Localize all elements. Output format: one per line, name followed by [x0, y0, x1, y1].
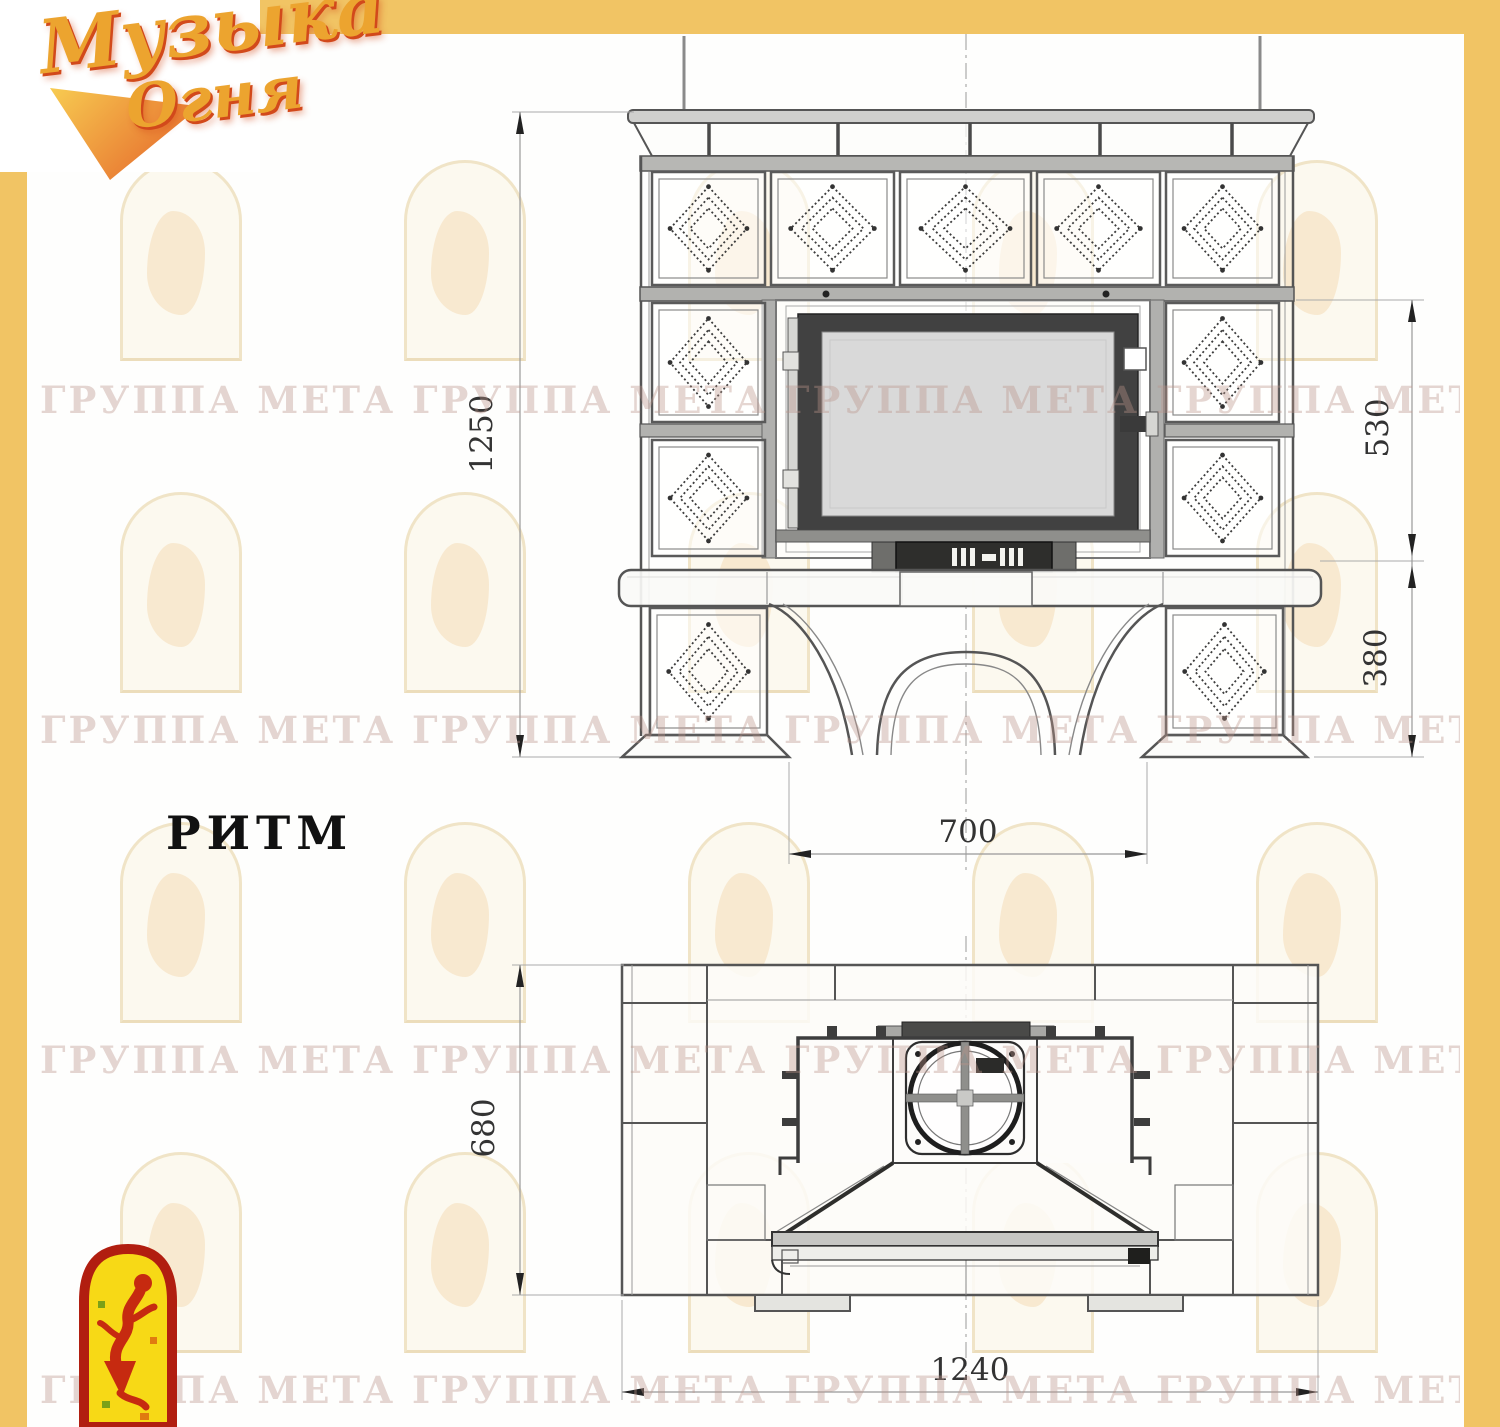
diamond-tile — [652, 303, 765, 422]
diamond-tile — [1166, 440, 1279, 556]
trim-band-right — [1165, 424, 1294, 437]
diamond-tile — [771, 172, 894, 285]
vent-grille — [872, 542, 1076, 572]
damper-handle — [976, 1058, 1004, 1073]
lintel-band — [640, 287, 1294, 301]
diamond-tile — [652, 172, 765, 285]
dim-height-label: 1250 — [464, 395, 500, 474]
base-left — [622, 735, 789, 757]
under-door-strip — [776, 530, 1150, 542]
fireplace-technical-drawing: 1250 530 380 700 — [0, 0, 1500, 1427]
trim-band-top — [640, 156, 1294, 171]
base-right — [1142, 735, 1307, 757]
door-hinge-top — [783, 352, 799, 370]
dim-base-label: 380 — [1358, 628, 1394, 687]
door-hinge-bar — [788, 318, 798, 528]
door-glass — [822, 332, 1114, 516]
door-latch — [1124, 348, 1146, 370]
dim-depth-label: 680 — [466, 1098, 502, 1157]
cornice-cap — [628, 110, 1314, 123]
plan-firebox-insert — [772, 1022, 1158, 1274]
door-handle-plate — [1146, 412, 1158, 436]
diamond-tile — [1166, 303, 1279, 422]
door-hinge-bottom — [783, 470, 799, 488]
diamond-tile — [1166, 608, 1283, 735]
lintel-bolt-left — [823, 291, 830, 298]
shelf-center-section — [900, 572, 1032, 606]
dim-firebox-label: 530 — [1360, 398, 1396, 457]
plan-view-drawing: 680 1240 — [466, 936, 1318, 1400]
dim-opening-label: 700 — [938, 814, 997, 850]
trim-band-left — [640, 424, 767, 437]
diamond-tile — [650, 608, 767, 735]
diamond-tile — [900, 172, 1031, 285]
diamond-tile — [1037, 172, 1160, 285]
model-title: РИТМ — [166, 806, 353, 860]
hood-front-plate — [772, 1232, 1158, 1246]
dim-width-label: 1240 — [931, 1352, 1010, 1388]
front-view-drawing: 1250 530 380 700 — [464, 34, 1424, 872]
diamond-tile — [1166, 172, 1279, 285]
diamond-tile — [652, 440, 765, 556]
door-handle — [1120, 416, 1146, 432]
lintel-bolt-right — [1103, 291, 1110, 298]
fire-dancer-emblem — [76, 1241, 180, 1427]
